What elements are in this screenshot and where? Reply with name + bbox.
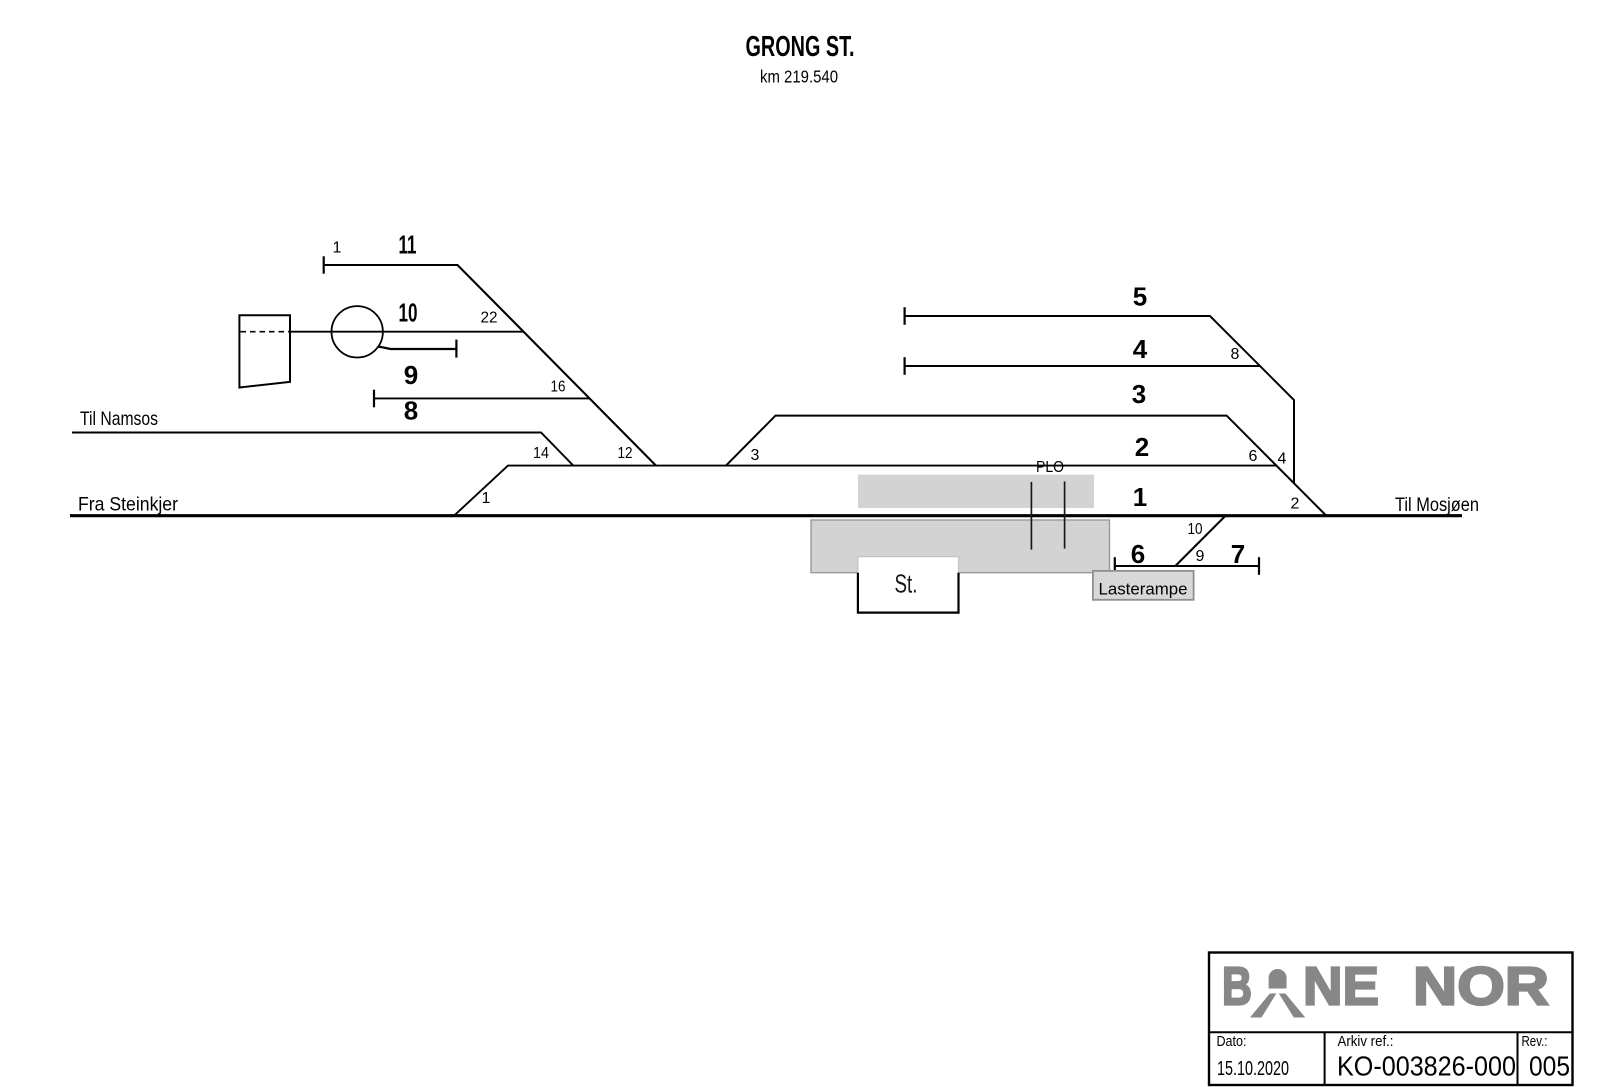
svg-text:Til Namsos: Til Namsos xyxy=(80,408,158,430)
svg-text:005: 005 xyxy=(1529,1051,1570,1082)
svg-text:Arkiv ref.:: Arkiv ref.: xyxy=(1338,1034,1394,1050)
svg-text:9: 9 xyxy=(404,360,418,390)
svg-text:3: 3 xyxy=(751,447,760,464)
svg-text:9: 9 xyxy=(1196,548,1205,565)
svg-text:Rev.:: Rev.: xyxy=(1522,1034,1548,1050)
svg-text:11: 11 xyxy=(399,230,417,260)
svg-text:km 219.540: km 219.540 xyxy=(760,67,838,87)
svg-text:PLO: PLO xyxy=(1036,459,1064,476)
svg-text:4: 4 xyxy=(1278,451,1287,468)
svg-text:NOR: NOR xyxy=(1413,957,1549,1017)
svg-text:7: 7 xyxy=(1231,539,1245,569)
svg-text:Dato:: Dato: xyxy=(1217,1034,1247,1050)
svg-text:2: 2 xyxy=(1135,432,1149,462)
svg-text:Lasterampe: Lasterampe xyxy=(1099,580,1188,599)
svg-text:14: 14 xyxy=(533,445,549,462)
svg-text:1: 1 xyxy=(333,240,342,257)
svg-text:5: 5 xyxy=(1133,282,1147,312)
svg-text:B: B xyxy=(1222,957,1252,1017)
svg-text:8: 8 xyxy=(1231,346,1240,363)
svg-text:8: 8 xyxy=(404,395,418,425)
svg-text:KO-003826-000: KO-003826-000 xyxy=(1337,1051,1516,1082)
svg-text:15.10.2020: 15.10.2020 xyxy=(1217,1058,1289,1080)
svg-text:Til Mosjøen: Til Mosjøen xyxy=(1395,494,1479,516)
svg-text:3: 3 xyxy=(1132,379,1146,409)
svg-text:St.: St. xyxy=(895,569,918,599)
svg-text:6: 6 xyxy=(1249,448,1258,465)
svg-text:10: 10 xyxy=(1188,521,1203,538)
svg-text:GRONG ST.: GRONG ST. xyxy=(746,31,855,63)
svg-text:12: 12 xyxy=(618,445,633,462)
svg-text:1: 1 xyxy=(482,490,491,507)
svg-text:1: 1 xyxy=(1133,482,1147,512)
svg-text:4: 4 xyxy=(1133,334,1148,364)
svg-text:2: 2 xyxy=(1291,496,1300,513)
svg-text:10: 10 xyxy=(399,298,418,328)
svg-text:NE: NE xyxy=(1303,957,1379,1017)
svg-text:6: 6 xyxy=(1131,539,1145,569)
svg-text:22: 22 xyxy=(481,310,498,327)
svg-text:16: 16 xyxy=(551,379,566,396)
svg-text:Fra Steinkjer: Fra Steinkjer xyxy=(78,494,178,516)
